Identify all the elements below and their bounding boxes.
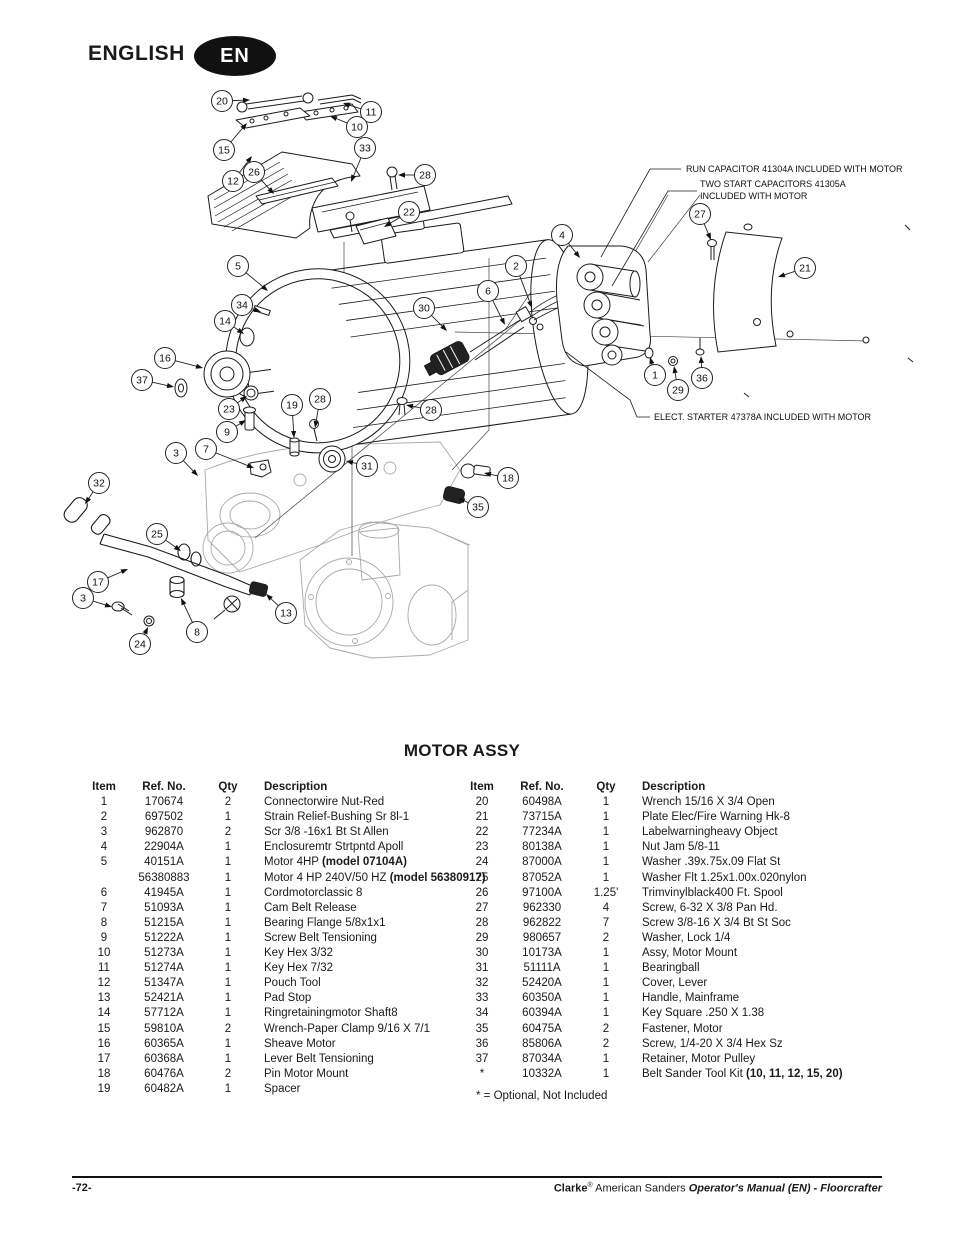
table-cell: 7	[582, 916, 630, 931]
table-cell: 57712A	[124, 1006, 204, 1021]
table-cell: 1	[582, 810, 630, 825]
svg-text:12: 12	[227, 176, 239, 188]
table-cell-description: Retainer, Motor Pulley	[630, 1052, 932, 1067]
table-row: 851215A1Bearing Flange 5/8x1x1	[84, 916, 514, 931]
callout-7: 7	[196, 439, 255, 469]
table-cell: 1	[582, 961, 630, 976]
brand-suffix: American Sanders	[595, 1183, 686, 1195]
table-cell: 2	[582, 1022, 630, 1037]
callout-10: 10	[330, 116, 368, 138]
table-cell: 16	[84, 1037, 124, 1052]
table-cell: 12	[84, 976, 124, 991]
table-row: 1352421A1Pad Stop	[84, 991, 514, 1006]
table-cell: 52420A	[502, 976, 582, 991]
table-row: 11706742Connectorwire Nut-Red	[84, 795, 514, 810]
table-cell: 27	[462, 901, 502, 916]
diagram-annotation: RUN CAPACITOR 41304A INCLUDED WITH MOTOR	[686, 164, 903, 174]
table-cell-description: Handle, Mainframe	[630, 991, 932, 1006]
table-cell: 80138A	[502, 840, 582, 855]
table-cell: 9	[84, 931, 124, 946]
table-cell: 56380883	[124, 871, 204, 886]
svg-text:28: 28	[425, 405, 437, 417]
parts-table-right: Item Ref. No. Qty Description 2060498A1W…	[462, 780, 932, 1104]
table-row: 1660365A1Sheave Motor	[84, 1037, 514, 1052]
table-cell: 51274A	[124, 961, 204, 976]
svg-text:14: 14	[219, 316, 231, 328]
table-cell: 19	[84, 1082, 124, 1097]
col-item: Item	[84, 780, 124, 795]
svg-text:31: 31	[361, 461, 373, 473]
callout-36: 36	[692, 356, 713, 389]
table-row: *10332A1Belt Sander Tool Kit (10, 11, 12…	[462, 1067, 932, 1082]
table-cell: 1	[204, 855, 252, 870]
table-cell-description: Screw, 6-32 X 3/8 Pan Hd.	[630, 901, 932, 916]
table-cell: 51222A	[124, 931, 204, 946]
table-cell: 14	[84, 1006, 124, 1021]
svg-text:28: 28	[419, 170, 431, 182]
table-cell: 1	[204, 946, 252, 961]
svg-text:27: 27	[694, 209, 706, 221]
table-cell-description: Washer, Lock 1/4	[630, 931, 932, 946]
table-cell-description: Belt Sander Tool Kit (10, 11, 12, 15, 20…	[630, 1067, 932, 1082]
callout-16: 16	[155, 348, 204, 369]
table-cell: 1	[582, 871, 630, 886]
table-cell: 1	[204, 871, 252, 886]
table-cell: 77234A	[502, 825, 582, 840]
table-cell: 31	[462, 961, 502, 976]
table-cell: 1.25'	[582, 886, 630, 901]
table-cell: 980657	[502, 931, 582, 946]
manual-page: ENGLISH EN	[0, 0, 954, 1235]
table-cell: 60350A	[502, 991, 582, 1006]
table-cell: 11	[84, 961, 124, 976]
col-qty: Qty	[204, 780, 252, 795]
table-cell: 2	[204, 1022, 252, 1037]
svg-text:25: 25	[151, 529, 163, 541]
svg-text:6: 6	[485, 286, 491, 298]
starter-assembly	[556, 240, 716, 367]
table-row: 422904A1Enclosuremtr Strtpntd Apoll	[84, 840, 514, 855]
svg-text:5: 5	[235, 261, 241, 273]
table-cell: 1	[582, 825, 630, 840]
table-cell: 34	[462, 1006, 502, 1021]
table-cell: 22904A	[124, 840, 204, 855]
svg-text:4: 4	[559, 230, 565, 242]
manual-title: Operator's Manual (EN) - Floorcrafter	[689, 1183, 882, 1195]
col-ref: Ref. No.	[124, 780, 204, 795]
table-cell-description: Plate Elec/Fire Warning Hk-8	[630, 810, 932, 825]
diagram-annotation: INCLUDED WITH MOTOR	[700, 191, 808, 201]
registered-mark: ®	[588, 1182, 593, 1189]
table-cell: 4	[582, 901, 630, 916]
exploded-view-diagram: RUN CAPACITOR 41304A INCLUDED WITH MOTOR…	[0, 0, 954, 710]
table-cell: 32	[462, 976, 502, 991]
table-cell: *	[462, 1067, 502, 1082]
table-cell: 1	[582, 1052, 630, 1067]
table-cell: 1	[84, 795, 124, 810]
table-cell: 1	[582, 795, 630, 810]
parts-table-header: Item Ref. No. Qty Description	[84, 780, 514, 795]
svg-text:29: 29	[672, 385, 684, 397]
table-cell: 170674	[124, 795, 204, 810]
table-row: 1760368A1Lever Belt Tensioning	[84, 1052, 514, 1067]
callout-32: 32	[85, 473, 110, 505]
svg-text:33: 33	[359, 143, 371, 155]
table-cell: 697502	[124, 810, 204, 825]
svg-text:36: 36	[696, 373, 708, 385]
table-cell: 1	[204, 901, 252, 916]
table-cell: 1	[204, 916, 252, 931]
parts-table-left: Item Ref. No. Qty Description 11706742Co…	[84, 780, 514, 1097]
table-row: 1559810A2Wrench-Paper Clamp 9/16 X 7/1	[84, 1022, 514, 1037]
table-cell: 1	[204, 1037, 252, 1052]
table-row: 641945A1Cordmotorclassic 8	[84, 886, 514, 901]
table-row: 3151111A1Bearingball	[462, 961, 932, 976]
callout-28: 28	[398, 165, 436, 186]
table-cell: 1	[582, 946, 630, 961]
col-qty: Qty	[582, 780, 630, 795]
table-cell-description: Trimvinylblack400 Ft. Spool	[630, 886, 932, 901]
table-cell-description: Bearingball	[630, 961, 932, 976]
table-row: 3010173A1Assy, Motor Mount	[462, 946, 932, 961]
table-cell: 15	[84, 1022, 124, 1037]
table-row: 1251347A1Pouch Tool	[84, 976, 514, 991]
callout-3: 3	[166, 443, 199, 477]
table-cell: 5	[84, 855, 124, 870]
table-cell: 2	[582, 1037, 630, 1052]
table-cell: 29	[462, 931, 502, 946]
table-row: 1151274A1Key Hex 7/32	[84, 961, 514, 976]
table-row: 3560475A2Fastener, Motor	[462, 1022, 932, 1037]
callout-5: 5	[228, 256, 269, 292]
svg-text:3: 3	[80, 593, 86, 605]
table-cell: 60475A	[502, 1022, 582, 1037]
table-row: 2587052A1Washer Flt 1.25x1.00x.020nylon	[462, 871, 932, 886]
callout-37: 37	[132, 370, 175, 391]
parts-rows-right: 2060498A1Wrench 15/16 X 3/4 Open2173715A…	[462, 795, 932, 1082]
cover-plate	[714, 224, 914, 397]
table-row: 1960482A1Spacer	[84, 1082, 514, 1097]
table-row: 540151A1Motor 4HP (model 07104A)	[84, 855, 514, 870]
table-cell: 59810A	[124, 1022, 204, 1037]
svg-text:13: 13	[280, 608, 292, 620]
svg-text:15: 15	[218, 145, 230, 157]
callout-15: 15	[214, 123, 248, 161]
table-cell: 24	[462, 855, 502, 870]
table-cell: 28	[462, 916, 502, 931]
svg-text:30: 30	[418, 303, 430, 315]
table-cell: 60368A	[124, 1052, 204, 1067]
table-cell: 18	[84, 1067, 124, 1082]
table-row: 39628702Scr 3/8 -16x1 Bt St Allen	[84, 825, 514, 840]
callout-21: 21	[778, 258, 816, 279]
table-cell: 962870	[124, 825, 204, 840]
callout-2: 2	[506, 256, 533, 309]
table-cell: 87034A	[502, 1052, 582, 1067]
callout-13: 13	[266, 594, 297, 624]
parts-rows-left: 11706742Connectorwire Nut-Red26975021Str…	[84, 795, 514, 1097]
col-desc: Description	[630, 780, 932, 795]
table-cell: 60498A	[502, 795, 582, 810]
table-row: 3360350A1Handle, Mainframe	[462, 991, 932, 1006]
table-row: 2173715A1Plate Elec/Fire Warning Hk-8	[462, 810, 932, 825]
callout-31: 31	[346, 456, 378, 477]
table-row: 1457712A1Ringretainingmotor Shaft8	[84, 1006, 514, 1021]
svg-text:1: 1	[652, 370, 658, 382]
table-cell: 1	[582, 991, 630, 1006]
table-cell-description: Screw, 1/4-20 X 3/4 Hex Sz	[630, 1037, 932, 1052]
mainframe-casting	[203, 442, 470, 658]
svg-text:17: 17	[92, 577, 104, 589]
brand-name: Clarke	[554, 1183, 588, 1195]
table-cell: 20	[462, 795, 502, 810]
svg-text:24: 24	[134, 639, 146, 651]
table-cell: 1	[204, 840, 252, 855]
table-cell: 8	[84, 916, 124, 931]
table-cell: 30	[462, 946, 502, 961]
table-cell: 85806A	[502, 1037, 582, 1052]
table-cell: 52421A	[124, 991, 204, 1006]
table-row: 289628227Screw 3/8-16 X 3/4 Bt St Soc	[462, 916, 932, 931]
table-cell: 1	[582, 840, 630, 855]
table-cell: 13	[84, 991, 124, 1006]
svg-text:23: 23	[223, 404, 235, 416]
table-row: 3787034A1Retainer, Motor Pulley	[462, 1052, 932, 1067]
svg-text:35: 35	[472, 502, 484, 514]
parts-table-header: Item Ref. No. Qty Description	[462, 780, 932, 795]
table-cell: 35	[462, 1022, 502, 1037]
table-row: 2277234A1Labelwarningheavy Object	[462, 825, 932, 840]
table-cell: 1	[582, 1067, 630, 1082]
annotation-texts: RUN CAPACITOR 41304A INCLUDED WITH MOTOR…	[654, 164, 903, 422]
table-cell: 97100A	[502, 886, 582, 901]
table-row: 2697100A1.25'Trimvinylblack400 Ft. Spool	[462, 886, 932, 901]
table-cell-description: Labelwarningheavy Object	[630, 825, 932, 840]
table-cell: 7	[84, 901, 124, 916]
svg-text:2: 2	[513, 261, 519, 273]
table-cell: 60482A	[124, 1082, 204, 1097]
svg-text:7: 7	[203, 444, 209, 456]
col-item: Item	[462, 780, 502, 795]
callout-29: 29	[668, 366, 689, 401]
table-row: 563808831Motor 4 HP 240V/50 HZ (model 56…	[84, 871, 514, 886]
table-cell-description: Washer .39x.75x.09 Flat St	[630, 855, 932, 870]
table-row: 3252420A1Cover, Lever	[462, 976, 932, 991]
callout-1: 1	[645, 357, 666, 386]
table-row: 299806572Washer, Lock 1/4	[462, 931, 932, 946]
table-cell: 962822	[502, 916, 582, 931]
table-cell: 1	[582, 855, 630, 870]
table-cell: 26	[462, 886, 502, 901]
table-cell: 60365A	[124, 1037, 204, 1052]
table-cell-description: Nut Jam 5/8-11	[630, 840, 932, 855]
callout-17: 17	[88, 569, 129, 593]
table-cell: 23	[462, 840, 502, 855]
callout-24: 24	[130, 627, 151, 655]
table-cell: 37	[462, 1052, 502, 1067]
svg-text:21: 21	[799, 263, 811, 275]
table-cell: 10173A	[502, 946, 582, 961]
table-cell: 1	[582, 1006, 630, 1021]
table-cell: 51215A	[124, 916, 204, 931]
footer-text: Clarke® American Sanders Operator's Manu…	[554, 1182, 882, 1195]
table-cell-description: Cover, Lever	[630, 976, 932, 991]
svg-text:3: 3	[173, 448, 179, 460]
page-number: -72-	[72, 1182, 92, 1194]
table-cell: 1	[204, 886, 252, 901]
table-cell-description: Key Square .250 X 1.38	[630, 1006, 932, 1021]
callout-9: 9	[217, 420, 247, 443]
table-cell: 22	[462, 825, 502, 840]
table-cell: 51111A	[502, 961, 582, 976]
table-cell: 1	[204, 976, 252, 991]
parts-table-title: MOTOR ASSY	[404, 741, 520, 761]
table-cell-description: Assy, Motor Mount	[630, 946, 932, 961]
table-cell: 1	[204, 931, 252, 946]
optional-footnote: * = Optional, Not Included	[462, 1089, 932, 1104]
table-row: 3685806A2Screw, 1/4-20 X 3/4 Hex Sz	[462, 1037, 932, 1052]
table-cell: 51273A	[124, 946, 204, 961]
table-cell-description: Washer Flt 1.25x1.00x.020nylon	[630, 871, 932, 886]
table-cell: 6	[84, 886, 124, 901]
table-cell: 2	[204, 795, 252, 810]
table-cell: 2	[204, 825, 252, 840]
table-cell: 41945A	[124, 886, 204, 901]
table-cell: 51347A	[124, 976, 204, 991]
table-cell: 10	[84, 946, 124, 961]
table-cell: 73715A	[502, 810, 582, 825]
table-cell: 3	[84, 825, 124, 840]
diagram-annotation: ELECT. STARTER 47378A INCLUDED WITH MOTO…	[654, 412, 872, 422]
callout-8: 8	[181, 598, 208, 643]
svg-text:22: 22	[403, 207, 415, 219]
table-cell: 60394A	[502, 1006, 582, 1021]
footer-rule	[72, 1176, 882, 1178]
svg-text:9: 9	[224, 427, 230, 439]
table-cell: 60476A	[124, 1067, 204, 1082]
callout-27: 27	[690, 204, 712, 241]
table-cell-description: Screw 3/8-16 X 3/4 Bt St Soc	[630, 916, 932, 931]
table-cell	[84, 871, 124, 886]
table-cell: 36	[462, 1037, 502, 1052]
svg-text:26: 26	[248, 167, 260, 179]
table-cell: 1	[204, 991, 252, 1006]
table-cell: 87052A	[502, 871, 582, 886]
svg-text:11: 11	[366, 107, 377, 119]
table-row: 2060498A1Wrench 15/16 X 3/4 Open	[462, 795, 932, 810]
svg-text:10: 10	[351, 122, 363, 134]
table-cell: 962330	[502, 901, 582, 916]
table-cell: 1	[204, 1006, 252, 1021]
diagram-annotation: TWO START CAPACITORS 41305A	[700, 179, 846, 189]
table-row: 751093A1Cam Belt Release	[84, 901, 514, 916]
table-cell: 17	[84, 1052, 124, 1067]
table-cell: 1	[204, 1052, 252, 1067]
table-cell: 10332A	[502, 1067, 582, 1082]
table-row: 2487000A1Washer .39x.75x.09 Flat St	[462, 855, 932, 870]
table-cell: 2	[204, 1067, 252, 1082]
table-row: 279623304Screw, 6-32 X 3/8 Pan Hd.	[462, 901, 932, 916]
table-row: 1860476A2Pin Motor Mount	[84, 1067, 514, 1082]
table-cell: 51093A	[124, 901, 204, 916]
table-row: 2380138A1Nut Jam 5/8-11	[462, 840, 932, 855]
svg-text:20: 20	[216, 96, 228, 108]
table-row: 951222A1Screw Belt Tensioning	[84, 931, 514, 946]
table-cell: 1	[582, 976, 630, 991]
svg-text:8: 8	[194, 627, 200, 639]
table-cell: 25	[462, 871, 502, 886]
table-row: 3460394A1Key Square .250 X 1.38	[462, 1006, 932, 1021]
table-cell-description: Wrench 15/16 X 3/4 Open	[630, 795, 932, 810]
svg-text:18: 18	[502, 473, 514, 485]
table-row: 1051273A1Key Hex 3/32	[84, 946, 514, 961]
table-row: 26975021Strain Relief-Bushing Sr 8l-1	[84, 810, 514, 825]
svg-text:34: 34	[236, 300, 248, 312]
callout-20: 20	[212, 91, 251, 112]
table-cell: 4	[84, 840, 124, 855]
table-cell: 40151A	[124, 855, 204, 870]
table-cell: 2	[84, 810, 124, 825]
table-cell-description: Fastener, Motor	[630, 1022, 932, 1037]
svg-text:37: 37	[136, 375, 148, 387]
col-ref: Ref. No.	[502, 780, 582, 795]
svg-text:19: 19	[286, 400, 298, 412]
table-cell: 1	[204, 961, 252, 976]
svg-text:28: 28	[314, 394, 326, 406]
table-cell: 87000A	[502, 855, 582, 870]
table-cell: 1	[204, 810, 252, 825]
table-cell: 2	[582, 931, 630, 946]
table-cell: 33	[462, 991, 502, 1006]
table-cell: 1	[204, 1082, 252, 1097]
callout-35: 35	[458, 497, 489, 518]
svg-text:16: 16	[159, 353, 171, 365]
table-cell: 21	[462, 810, 502, 825]
svg-text:32: 32	[93, 478, 105, 490]
